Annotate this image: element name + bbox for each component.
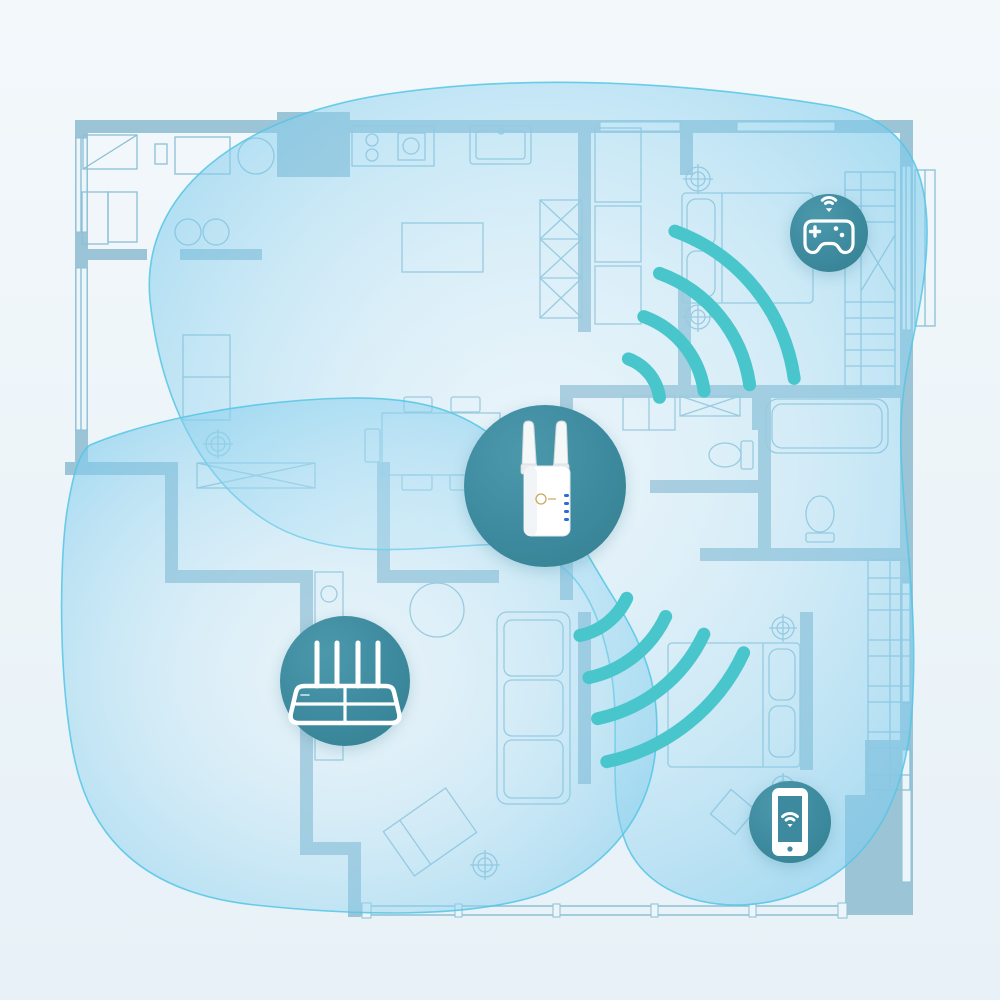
router-node	[280, 616, 410, 746]
extender-antenna-right	[554, 421, 569, 468]
range-extender-node	[464, 405, 626, 567]
router-antennas	[317, 643, 378, 686]
range-extender-device	[464, 405, 626, 567]
wifi-floorplan-diagram	[0, 0, 1000, 1000]
signal-to-game-room-arc	[628, 359, 659, 397]
gamepad-body	[805, 221, 853, 253]
signal-to-phone-room-arc	[580, 598, 627, 635]
game-console-node	[790, 194, 868, 272]
smartphone-node	[749, 781, 831, 863]
extender-antenna-left	[522, 421, 537, 468]
smartphone-wifi-icon	[749, 781, 831, 863]
phone-home-button	[787, 846, 792, 851]
router-icon	[280, 616, 410, 746]
game-controller-wifi-icon	[790, 194, 868, 272]
gamepad-dpad	[811, 227, 820, 236]
wifi-waves-icon	[822, 198, 835, 204]
